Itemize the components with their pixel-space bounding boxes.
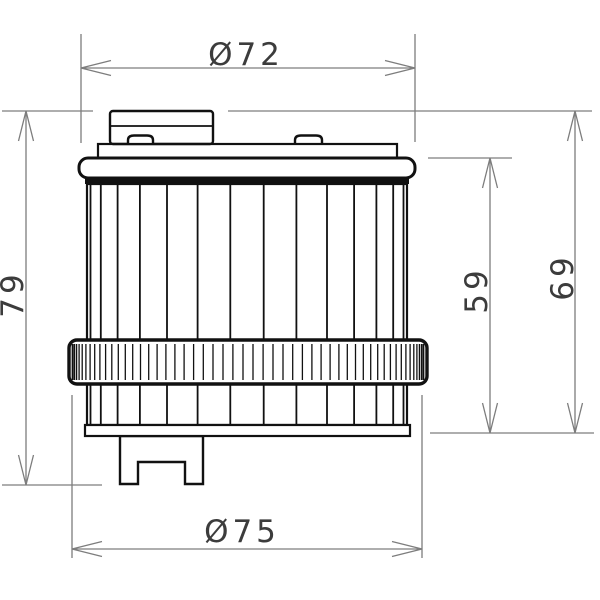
dim-label-top-diameter: Ø72 [208,37,284,73]
drawing-svg: Ø72 Ø75 79 59 69 [0,0,600,600]
cap-ring [79,158,415,178]
pleat-body-lower [87,384,407,425]
dim-label-bottom-diameter: Ø75 [204,514,280,550]
rivet-bump-left [128,136,153,145]
knurl-band [69,340,427,384]
filter-body [69,111,427,484]
pleats-lower [91,384,404,425]
oil-filter-technical-drawing: Ø72 Ø75 79 59 69 [0,0,600,600]
pleats-upper [91,184,404,341]
top-boss [110,111,213,144]
dim-label-body-height: 69 [545,253,581,300]
pleat-body-upper [87,184,407,341]
dim-label-element-height: 59 [459,266,495,313]
rivet-bump-right [295,136,322,145]
bottom-plate [85,425,410,436]
top-plate [98,144,397,158]
dim-label-overall-height: 79 [0,270,31,317]
bottom-tab [120,436,203,484]
